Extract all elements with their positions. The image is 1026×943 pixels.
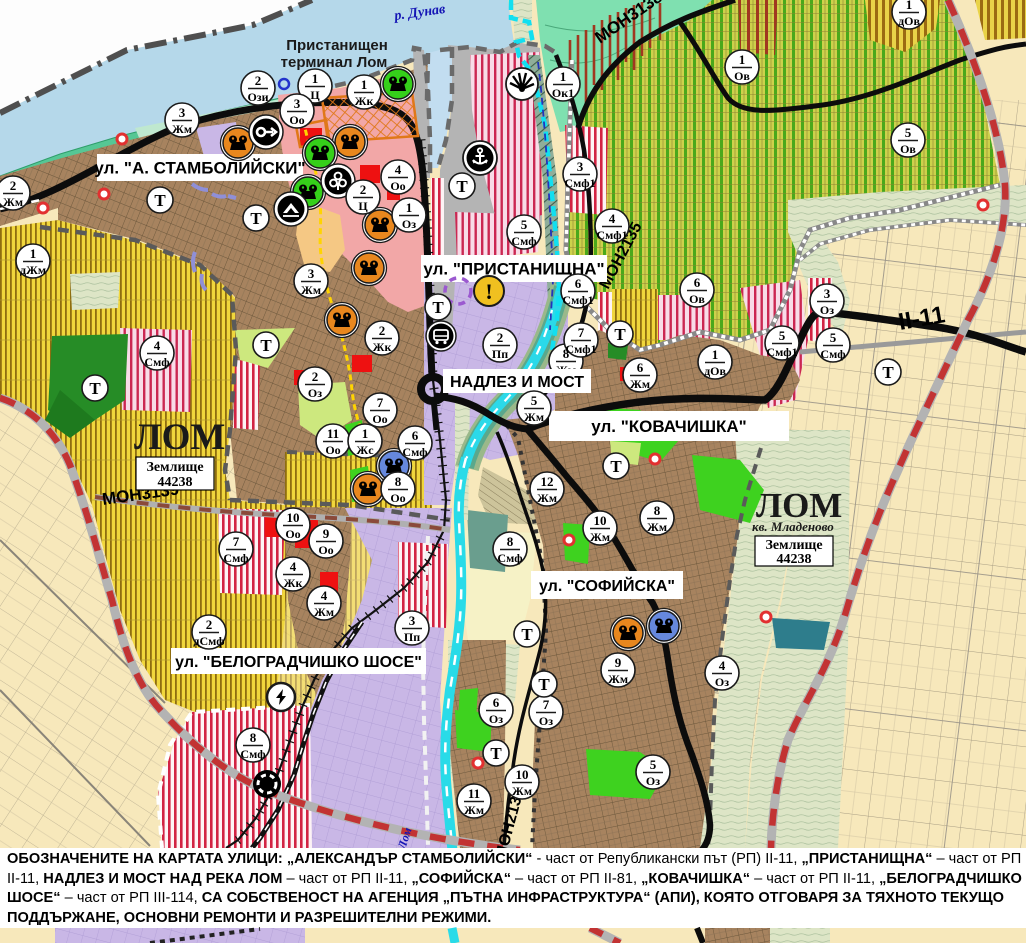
svg-text:Жм: Жм: [464, 803, 484, 817]
svg-text:Оз: Оз: [715, 675, 729, 689]
svg-text:2: 2: [206, 617, 213, 632]
svg-text:9: 9: [323, 526, 330, 541]
svg-text:2: 2: [10, 178, 17, 193]
svg-text:1: 1: [362, 426, 369, 441]
svg-text:Оз: Оз: [820, 303, 834, 317]
svg-text:ул. "БЕЛОГРАДЧИШКО ШОСЕ": ул. "БЕЛОГРАДЧИШКО ШОСЕ": [175, 654, 422, 671]
svg-text:3: 3: [179, 105, 186, 120]
svg-text:Оо: Оо: [285, 527, 300, 541]
svg-text:9: 9: [615, 655, 622, 670]
svg-text:Смф: Смф: [223, 551, 248, 565]
svg-text:Оз: Оз: [646, 774, 660, 788]
svg-text:ЛОМ: ЛОМ: [134, 417, 225, 458]
svg-text:2: 2: [497, 330, 504, 345]
svg-text:Жс: Жс: [356, 443, 374, 457]
svg-text:4: 4: [290, 559, 297, 574]
svg-text:Смф1: Смф1: [565, 342, 596, 356]
svg-text:Т: Т: [614, 325, 626, 344]
svg-text:Оо: Оо: [289, 113, 304, 127]
svg-text:1: 1: [906, 0, 913, 12]
svg-text:4: 4: [154, 338, 161, 353]
svg-text:Жм: Жм: [524, 410, 544, 424]
svg-text:Оз: Оз: [539, 714, 553, 728]
svg-text:Смф: Смф: [497, 551, 522, 565]
svg-text:Ов: Ов: [900, 142, 916, 156]
svg-text:8: 8: [250, 730, 257, 745]
svg-text:10: 10: [287, 510, 300, 525]
svg-text:Ц: Ц: [358, 199, 368, 213]
svg-text:6: 6: [575, 276, 582, 291]
svg-text:1: 1: [712, 347, 719, 362]
svg-text:8: 8: [654, 503, 661, 518]
svg-text:7: 7: [543, 697, 550, 712]
svg-text:Т: Т: [456, 177, 468, 196]
svg-text:1: 1: [739, 52, 746, 67]
svg-text:Жм: Жм: [512, 784, 532, 798]
svg-text:11: 11: [327, 426, 339, 441]
svg-text:дОв: дОв: [898, 14, 920, 28]
svg-text:Жк: Жк: [284, 576, 303, 590]
svg-text:4: 4: [395, 162, 402, 177]
svg-text:6: 6: [412, 428, 419, 443]
svg-text:5: 5: [650, 757, 657, 772]
svg-text:Т: Т: [610, 457, 622, 476]
svg-text:Жм: Жм: [314, 605, 334, 619]
svg-text:8: 8: [507, 534, 514, 549]
svg-text:5: 5: [779, 328, 786, 343]
svg-text:Смф1: Смф1: [564, 176, 595, 190]
svg-text:1: 1: [312, 71, 319, 86]
svg-text:кв. Младеново: кв. Младеново: [752, 519, 834, 534]
svg-text:3: 3: [577, 159, 584, 174]
svg-text:Т: Т: [250, 209, 262, 228]
svg-text:2: 2: [255, 73, 262, 88]
svg-text:Смф: Смф: [820, 347, 845, 361]
svg-text:Оо: Оо: [325, 443, 340, 457]
svg-text:1: 1: [30, 246, 37, 261]
svg-text:Оз: Оз: [308, 386, 322, 400]
svg-text:4: 4: [321, 588, 328, 603]
svg-text:дСмф: дСмф: [193, 634, 224, 648]
svg-text:Оо: Оо: [372, 412, 387, 426]
svg-text:Жм: Жм: [630, 377, 650, 391]
svg-text:1: 1: [406, 200, 413, 215]
svg-text:!: !: [485, 279, 492, 304]
svg-text:Жм: Жм: [301, 283, 321, 297]
svg-text:Жк: Жк: [373, 340, 392, 354]
svg-text:Смф: Смф: [240, 747, 265, 761]
svg-text:Т: Т: [521, 625, 533, 644]
svg-text:5: 5: [521, 217, 528, 232]
svg-text:Т: Т: [89, 379, 101, 398]
svg-text:6: 6: [694, 275, 701, 290]
svg-text:5: 5: [905, 125, 912, 140]
svg-text:Оз: Оз: [402, 217, 416, 231]
svg-text:Смф1: Смф1: [596, 228, 627, 242]
svg-text:44238: 44238: [777, 552, 812, 567]
svg-text:7: 7: [233, 534, 240, 549]
svg-text:Ов: Ов: [689, 292, 705, 306]
svg-text:Т: Т: [432, 298, 444, 317]
svg-text:Ов: Ов: [734, 69, 750, 83]
svg-text:44238: 44238: [158, 475, 193, 490]
svg-text:Жк: Жк: [355, 94, 374, 108]
svg-text:5: 5: [531, 393, 538, 408]
svg-text:6: 6: [493, 695, 500, 710]
svg-text:Смф: Смф: [402, 445, 427, 459]
svg-text:ул. "СОФИЙСКА": ул. "СОФИЙСКА": [539, 576, 675, 595]
svg-text:Т: Т: [154, 191, 166, 210]
svg-text:7: 7: [578, 325, 585, 340]
svg-text:3: 3: [409, 613, 416, 628]
svg-text:Землище: Землище: [146, 460, 203, 475]
svg-text:Пп: Пп: [492, 347, 508, 361]
svg-text:4: 4: [719, 658, 726, 673]
svg-text:Жм: Жм: [537, 491, 557, 505]
svg-text:5: 5: [830, 330, 837, 345]
svg-text:3: 3: [294, 96, 301, 111]
svg-text:1: 1: [560, 69, 567, 84]
svg-text:Жм: Жм: [172, 122, 192, 136]
svg-text:Оо: Оо: [390, 491, 405, 505]
svg-text:8: 8: [395, 474, 402, 489]
svg-text:Смф1: Смф1: [766, 345, 797, 359]
svg-text:10: 10: [594, 513, 607, 528]
svg-text:Землище: Землище: [765, 538, 822, 553]
svg-text:Т: Т: [260, 336, 272, 355]
svg-text:11: 11: [468, 786, 480, 801]
svg-text:ул. "КОВАЧИШКА": ул. "КОВАЧИШКА": [591, 417, 747, 436]
svg-text:Т: Т: [538, 675, 550, 694]
svg-text:7: 7: [377, 395, 384, 410]
svg-text:НАДЛЕЗ И МОСТ: НАДЛЕЗ И МОСТ: [450, 374, 584, 391]
svg-text:Пристанищен: Пристанищен: [286, 37, 388, 54]
svg-text:Оз: Оз: [489, 712, 503, 726]
svg-text:Смф: Смф: [511, 234, 536, 248]
svg-text:Оо: Оо: [390, 179, 405, 193]
svg-text:Ози: Ози: [247, 90, 268, 104]
svg-text:дОв: дОв: [704, 364, 726, 378]
svg-text:6: 6: [637, 360, 644, 375]
svg-text:дЖм: дЖм: [20, 263, 46, 277]
svg-text:4: 4: [609, 211, 616, 226]
svg-text:Жм: Жм: [590, 530, 610, 544]
svg-text:3: 3: [824, 286, 831, 301]
svg-text:1: 1: [361, 77, 368, 92]
svg-text:2: 2: [360, 182, 367, 197]
svg-text:Ц: Ц: [310, 88, 320, 102]
svg-text:Жм: Жм: [647, 520, 667, 534]
svg-text:Ок1: Ок1: [552, 86, 574, 100]
svg-text:2: 2: [312, 369, 319, 384]
svg-text:Оо: Оо: [318, 543, 333, 557]
svg-text:3: 3: [308, 266, 315, 281]
svg-text:Смф: Смф: [144, 355, 169, 369]
svg-text:ул. "А. СТАМБОЛИЙСКИ": ул. "А. СТАМБОЛИЙСКИ": [94, 159, 305, 178]
svg-text:10: 10: [516, 767, 529, 782]
svg-text:2: 2: [379, 323, 386, 338]
svg-text:терминал Лом: терминал Лом: [281, 54, 388, 71]
svg-text:Т: Т: [490, 744, 502, 763]
svg-text:Т: Т: [882, 363, 894, 382]
svg-text:Жм: Жм: [3, 195, 23, 209]
svg-text:12: 12: [541, 474, 554, 489]
svg-text:Смф1: Смф1: [562, 293, 593, 307]
svg-text:Пп: Пп: [404, 630, 420, 644]
svg-text:Жм: Жм: [608, 672, 628, 686]
